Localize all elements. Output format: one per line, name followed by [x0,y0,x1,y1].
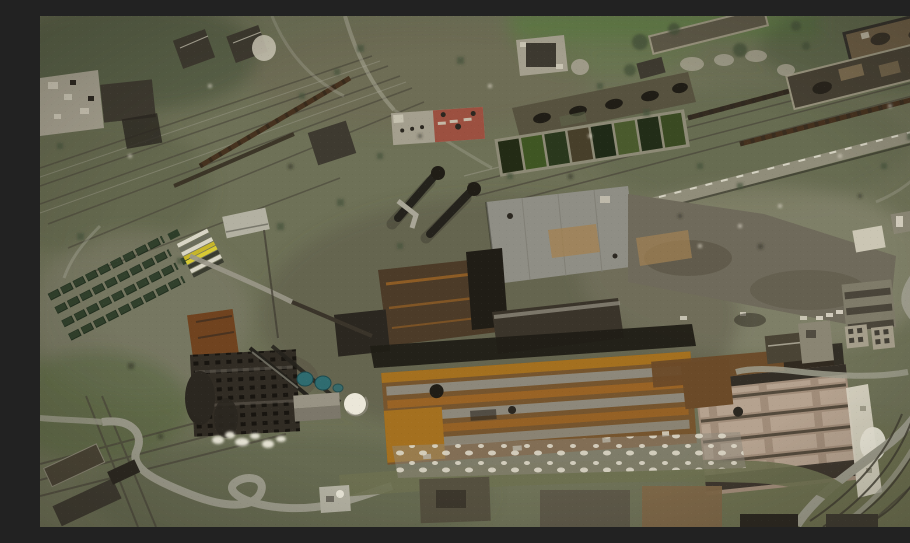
satellite-photo [40,16,910,527]
vignette-overlay [40,16,910,527]
satellite-photo-frame [40,16,910,527]
